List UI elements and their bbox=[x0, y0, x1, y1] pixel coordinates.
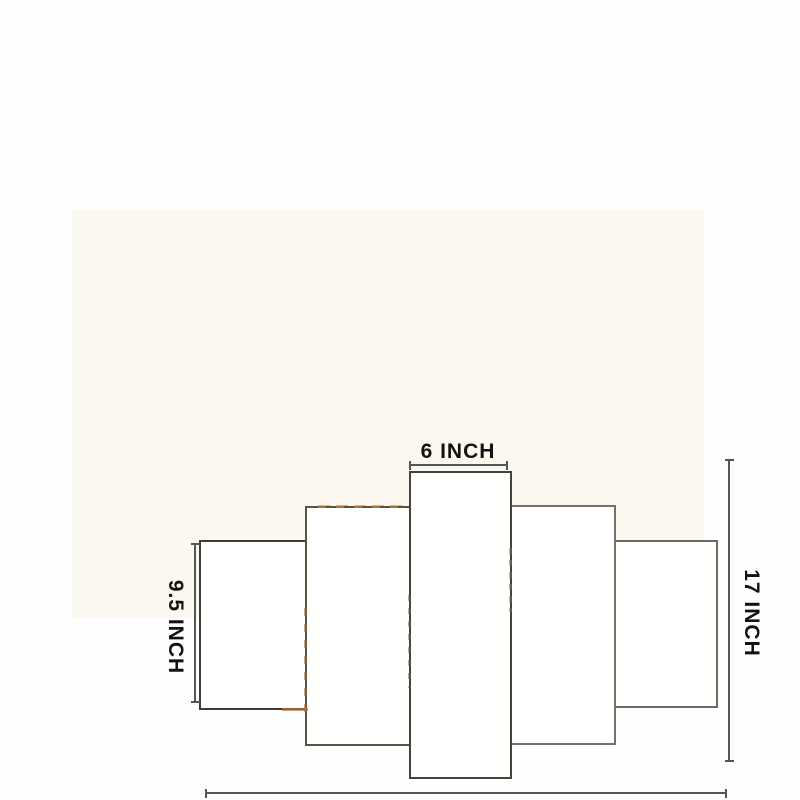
canvas-panel-4 bbox=[510, 505, 616, 745]
dimension-label-right: 17 INCH bbox=[739, 569, 763, 657]
dimension-line-total-height bbox=[728, 459, 730, 762]
canvas-panel-1 bbox=[199, 540, 307, 710]
dimension-line-total-width bbox=[205, 792, 727, 794]
dimension-line-side-height bbox=[194, 543, 196, 703]
canvas-panel-3 bbox=[409, 471, 512, 779]
product-dimension-image: 6 INCH 9.5 INCH 17 INCH 30 INCH bbox=[0, 0, 800, 800]
dimension-label-left: 9.5 INCH bbox=[163, 580, 187, 674]
canvas-panel-2 bbox=[305, 506, 411, 746]
product-photo-area: 6 INCH 9.5 INCH 17 INCH 30 INCH bbox=[72, 210, 704, 618]
canvas-panel-5 bbox=[614, 540, 718, 708]
dimension-line-top-width bbox=[409, 464, 508, 466]
dimension-label-top: 6 INCH bbox=[421, 440, 496, 464]
